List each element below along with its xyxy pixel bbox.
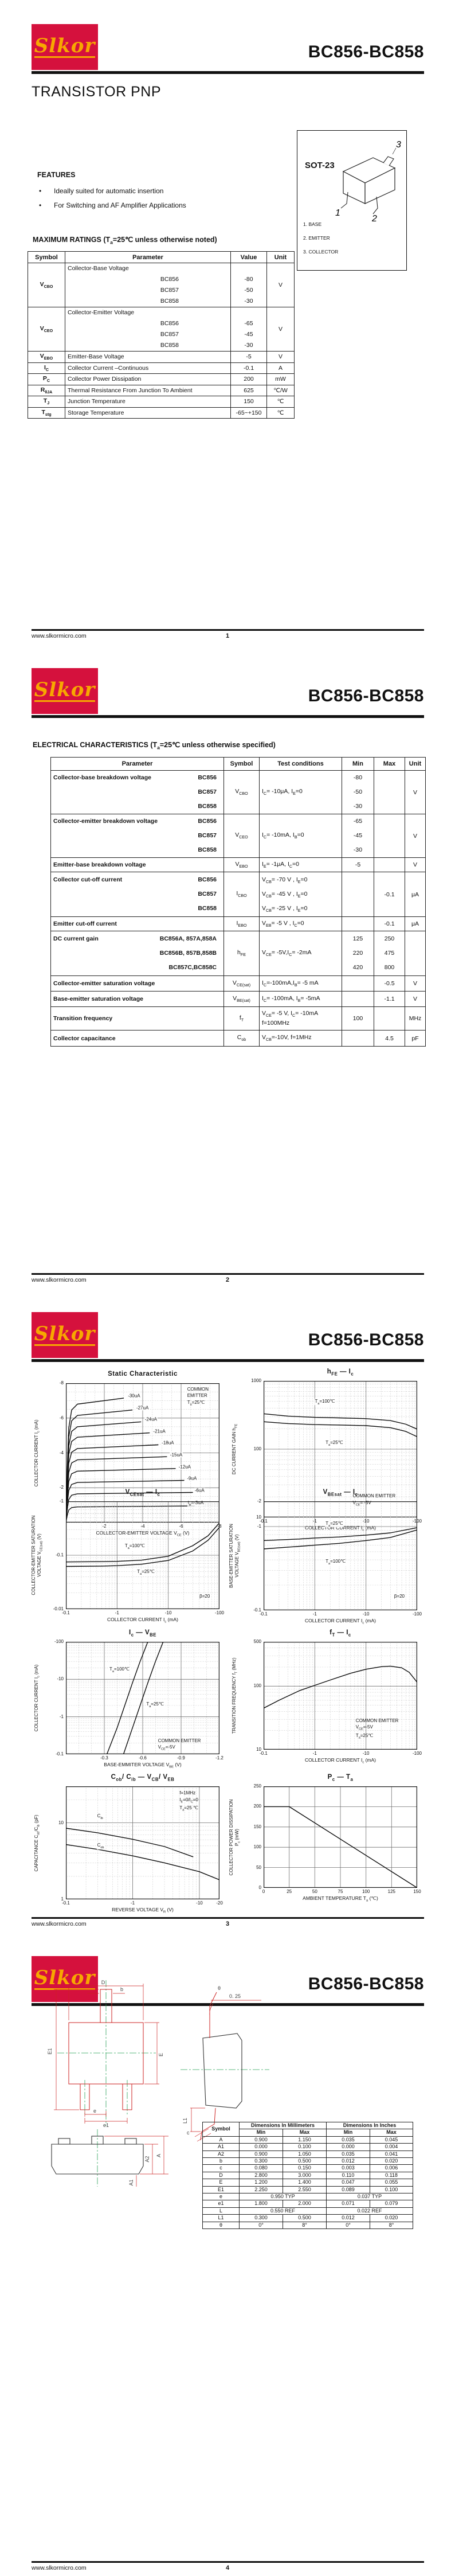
cell-symbol: VEBO <box>28 352 65 363</box>
cell-unit: V <box>267 352 295 363</box>
cell-symbol: E <box>203 2179 240 2186</box>
chart-plot-3 <box>66 1501 219 1609</box>
cell-value: 0.118 <box>370 2172 413 2179</box>
cell-value: 0.003 <box>327 2165 370 2172</box>
table-header-row: ParameterSymbolTest conditionsMinMaxUnit <box>51 758 426 771</box>
cell-value: -65~+150 <box>231 407 267 419</box>
cell-unit: V <box>267 307 295 352</box>
y-tick-label: -10 <box>44 1676 64 1681</box>
cell-unit: ℃ <box>267 407 295 419</box>
x-tick-label: -0.9 <box>171 1755 191 1761</box>
cell-unit: mW <box>267 374 295 385</box>
cell-test-conditions: IC=-100mA,IB= -5 mA <box>260 976 342 992</box>
part-number-title: BC856-BC858 <box>308 42 424 62</box>
column-header: Value <box>231 252 267 263</box>
table-row: E12.2502.5500.0890.100 <box>203 2186 413 2193</box>
cell-symbol: L1 <box>203 2215 240 2222</box>
cell-value: 0.950 TYP <box>240 2193 327 2200</box>
footer-rule <box>32 1273 424 1275</box>
column-header: Symbol <box>28 252 65 263</box>
cell-value: 0.500 <box>283 2215 327 2222</box>
feature-item: •For Switching and AF Amplifier Applicat… <box>39 201 186 209</box>
curve-label: Ta=25℃ <box>325 1441 343 1447</box>
cell-unit <box>405 931 426 976</box>
table-header-row: SymbolParameterValueUnit <box>28 252 295 263</box>
brand-logo: Slkor <box>32 24 98 70</box>
table-row: TJ Junction Temperature 150 ℃ <box>28 396 295 408</box>
cell-value: 0.037 TYP <box>327 2193 413 2200</box>
cell-value: 8° <box>283 2222 327 2228</box>
cell-min <box>342 917 374 931</box>
table-row: VEBO Emitter-Base Voltage -5 V <box>28 352 295 363</box>
x-tick-label: -1 <box>123 1900 142 1906</box>
part-number-title: BC856-BC858 <box>308 1974 424 1994</box>
cell-max <box>374 814 405 858</box>
cell-value: -0.1 <box>231 362 267 374</box>
y-axis-title: DC CURRENT GAIN hFE <box>232 1381 238 1517</box>
package-name: SOT-23 <box>305 161 335 170</box>
curve-label: Ta=100℃ <box>314 1399 335 1406</box>
y-tick-label: -2 <box>242 1498 261 1504</box>
pin-legend-base: 1. BASE <box>303 221 321 227</box>
curve-label: Ta=25℃ <box>325 1521 343 1528</box>
cell-value: 1.050 <box>283 2150 327 2157</box>
cell-symbol: RθJA <box>28 385 65 396</box>
cell-symbol: VEBO <box>224 858 260 872</box>
cell-symbol: fT <box>224 1007 260 1031</box>
dim-label-E: E <box>158 2053 164 2056</box>
page-number: 1 <box>0 633 455 639</box>
page-4: Slkor BC856-BC858 D b E1 E e <box>0 1932 455 2576</box>
cell-symbol: b <box>203 2158 240 2165</box>
column-header: Test conditions <box>260 758 342 771</box>
y-axis-title: COLLECTOR-EMITTER SATURATIONVOLTAGE VCE(… <box>31 1501 44 1609</box>
table-row: Emitter-base breakdown voltage VEBO IE= … <box>51 858 426 872</box>
cell-max: 4.5 <box>374 1031 405 1047</box>
x-tick-label: 75 <box>331 1889 350 1894</box>
cell-value: 0.035 <box>327 2150 370 2157</box>
header-rule <box>32 715 424 718</box>
cell-parameter: Collector-emitter saturation voltage <box>51 976 224 992</box>
cell-value: 0.300 <box>240 2215 283 2222</box>
cell-max: -1.1 <box>374 992 405 1007</box>
table-row: Collector-base breakdown voltageBC856BC8… <box>51 771 426 814</box>
cell-symbol: θ <box>203 2222 240 2228</box>
page-number: 4 <box>0 2565 455 2571</box>
cell-value: 0.006 <box>370 2165 413 2172</box>
footer-rule <box>32 2561 424 2563</box>
cell-value: 3.000 <box>283 2172 327 2179</box>
chart-title: VBEsat — Ic <box>264 1489 417 1497</box>
column-header: Parameter <box>65 252 231 263</box>
feature-item: •Ideally suited for automatic insertion <box>39 187 163 195</box>
cell-max: -0.1 <box>374 917 405 931</box>
cell-unit: V <box>405 814 426 858</box>
pin-legend-collector: 3. COLLECTOR <box>303 249 338 255</box>
y-tick-label: 1 <box>44 1896 64 1902</box>
dim-label-D: D <box>101 1980 105 1985</box>
column-header: Unit <box>267 252 295 263</box>
cell-max: -0.1 <box>374 872 405 917</box>
y-tick-label: 10 <box>242 1747 261 1752</box>
curve-label: Ta=100℃ <box>325 1559 346 1566</box>
cell-value: 0.080 <box>240 2165 283 2172</box>
pin-number-label: 3 <box>396 140 401 150</box>
cell-parameter: Collector-emitter breakdown voltageBC856… <box>51 814 224 858</box>
characteristic-charts: Static Characteristic-2-4-6-8-2-4-6-8COL… <box>0 1288 455 1932</box>
x-tick-label: 50 <box>305 1889 324 1894</box>
chart-annotation: β=20 <box>394 1593 405 1600</box>
cell-test-conditions: VEB= -5 V , IC=0 <box>260 917 342 931</box>
cell-symbol: TJ <box>28 396 65 408</box>
table-row: A20.9001.0500.0350.041 <box>203 2150 413 2157</box>
dim-label-theta: θ <box>218 1985 221 1991</box>
table-row: Base-emitter saturation voltage VBE(sat)… <box>51 992 426 1007</box>
cell-max <box>374 771 405 814</box>
cell-symbol: A <box>203 2136 240 2143</box>
dim-label-025: 0. 25 <box>229 1993 241 1999</box>
page-3: Slkor BC856-BC858 Static Characteristic-… <box>0 1288 455 1932</box>
cell-parameter: Storage Temperature <box>65 407 231 419</box>
table-header-row: SymbolDimensions In MillimetersDimension… <box>203 2122 413 2129</box>
cell-parameter: Collector-Base VoltageBC856BC857BC858 <box>65 263 231 307</box>
column-header: Min <box>327 2129 370 2136</box>
y-tick-label: 10 <box>44 1820 64 1825</box>
y-axis-title: COLLECTOR CURRENT Ic (mA) <box>34 1642 41 1754</box>
y-tick-label: 0 <box>242 1885 261 1890</box>
cell-symbol: Tstg <box>28 407 65 419</box>
curve-label: Ta=25℃ <box>136 1569 155 1576</box>
x-tick-label: 125 <box>382 1889 401 1894</box>
table-row: IC Collector Current –Continuous -0.1 A <box>28 362 295 374</box>
cell-parameter: Collector Power Dissipation <box>65 374 231 385</box>
cell-symbol: PC <box>28 374 65 385</box>
curve-label: Cob <box>97 1843 105 1850</box>
cell-value: 1.400 <box>283 2179 327 2186</box>
cell-symbol: hFE <box>224 931 260 976</box>
cell-value: 0.000 <box>327 2144 370 2150</box>
chart-annotation: COMMON EMITTERVCE=-5VTa=25℃ <box>356 1718 399 1741</box>
curve-label: Cib <box>97 1813 104 1820</box>
table-row: VCEO Collector-Emitter VoltageBC856BC857… <box>28 307 295 352</box>
cell-test-conditions: VCB=-10V, f=1MHz <box>260 1031 342 1047</box>
y-tick-label: 50 <box>242 1865 261 1870</box>
cell-value: 0.004 <box>370 2144 413 2150</box>
cell-symbol: L <box>203 2207 240 2214</box>
cell-value: 0° <box>327 2222 370 2228</box>
column-header: Symbol <box>203 2122 240 2137</box>
package-top-view-drawing: D b E1 E e e1 <box>34 1978 172 2128</box>
y-tick-label: 150 <box>242 1824 261 1829</box>
column-header: Dimensions In Millimeters <box>240 2122 327 2129</box>
cell-min <box>342 872 374 917</box>
cell-value: 2.550 <box>283 2186 327 2193</box>
table-row: Collector capacitance Cob VCB=-10V, f=1M… <box>51 1031 426 1047</box>
chart-title: Ic — VBE <box>66 1629 219 1637</box>
column-header: Max <box>374 758 405 771</box>
x-tick-label: -0.6 <box>133 1755 152 1761</box>
column-header: Unit <box>405 758 426 771</box>
cell-value: 1.150 <box>283 2136 327 2143</box>
chart-plot-8 <box>264 1786 417 1888</box>
chart-title: hFE — Ic <box>264 1368 417 1376</box>
cell-parameter: Collector Current –Continuous <box>65 362 231 374</box>
cell-value: 0° <box>240 2222 283 2228</box>
x-tick-label: -100 <box>210 1610 229 1615</box>
cell-value: 0.300 <box>240 2158 283 2165</box>
y-tick-label: -0.1 <box>242 1607 261 1613</box>
y-tick-label: -0.01 <box>44 1606 64 1611</box>
y-tick-label: -0.1 <box>44 1552 64 1558</box>
x-tick-label: -1 <box>305 1611 324 1617</box>
cell-value: 8° <box>370 2222 413 2228</box>
cell-symbol: c <box>203 2165 240 2172</box>
y-tick-label: -1 <box>44 1714 64 1719</box>
cell-test-conditions: IE= -1μA, IC=0 <box>260 858 342 872</box>
cell-max: -0.5 <box>374 976 405 992</box>
page-number: 3 <box>0 1921 455 1927</box>
chart-annotation: β=20 <box>199 1593 210 1600</box>
cell-value: 0.041 <box>370 2150 413 2157</box>
y-axis-title: COLLECTOR POWER DISSIPATIONPc (mW) <box>229 1786 241 1888</box>
cell-value: 0.089 <box>327 2186 370 2193</box>
y-tick-label: -0.1 <box>44 1751 64 1757</box>
cell-unit: V <box>405 858 426 872</box>
cell-parameter: Collector capacitance <box>51 1031 224 1047</box>
curve-label: -30uA <box>127 1393 140 1398</box>
cell-parameter: Thermal Resistance From Junction To Ambi… <box>65 385 231 396</box>
chart-annotation: f=1MHzIE=0/IC=0Ta=25 ℃ <box>179 1790 198 1813</box>
cell-value: 0.500 <box>283 2158 327 2165</box>
cell-unit: MHz <box>405 1007 426 1031</box>
column-header: Max <box>370 2129 413 2136</box>
x-tick-label: 25 <box>280 1889 299 1894</box>
cell-value: 0.045 <box>370 2136 413 2143</box>
cell-unit: μA <box>405 917 426 931</box>
cell-value: 0.100 <box>370 2186 413 2193</box>
curve-label: -27uA <box>136 1405 149 1410</box>
part-number-title: BC856-BC858 <box>308 686 424 706</box>
y-tick-label: 250 <box>242 1783 261 1789</box>
cell-value: 2.000 <box>283 2200 327 2207</box>
cell-parameter: Collector cut-off currentBC856BC857BC858 <box>51 872 224 917</box>
cell-min: 125220420 <box>342 931 374 976</box>
chart-title: Cob/ Cib — VCB/ VEB <box>66 1774 219 1782</box>
cell-unit: V <box>405 976 426 992</box>
cell-value: 0.100 <box>283 2144 327 2150</box>
header-rule <box>32 71 424 74</box>
y-tick-label: -1 <box>44 1498 64 1504</box>
cell-min <box>342 976 374 992</box>
cell-symbol: IC <box>28 362 65 374</box>
cell-parameter: Junction Temperature <box>65 396 231 408</box>
table-row: Tstg Storage Temperature -65~+150 ℃ <box>28 407 295 419</box>
dim-label-A1: A1 <box>128 2179 134 2185</box>
cell-test-conditions: VCE= -5 V, IC= -10mAf=100MHz <box>260 1007 342 1031</box>
x-axis-title: COLLECTOR CURRENT Ic (mA) <box>264 1618 417 1625</box>
x-tick-label: -10 <box>356 1611 376 1617</box>
cell-value: 0.055 <box>370 2179 413 2186</box>
x-tick-label: -10 <box>159 1610 178 1615</box>
table-row: L0.550 REF0.022 REF <box>203 2207 413 2214</box>
cell-unit: ℃/W <box>267 385 295 396</box>
cell-value: 0.012 <box>327 2215 370 2222</box>
chart-annotation: COMMONEMITTERTa=25℃ <box>187 1386 209 1408</box>
table-row: b0.3000.5000.0120.020 <box>203 2158 413 2165</box>
cell-unit: V <box>267 263 295 307</box>
cell-min: -80-50-30 <box>342 771 374 814</box>
chart-title: VCEsat — Ic <box>66 1489 219 1497</box>
y-axis-title: BASE-EMITTER SATURATIONVOLTAGE VBE(sat) … <box>229 1501 241 1610</box>
table-row: A10.0000.1000.0000.004 <box>203 2144 413 2150</box>
cell-parameter: Emitter cut-off current <box>51 917 224 931</box>
x-axis-title: AMBIENT TEMPERATURE Ta (℃) <box>264 1895 417 1903</box>
cell-value: 0.012 <box>327 2158 370 2165</box>
cell-parameter: Collector-base breakdown voltageBC856BC8… <box>51 771 224 814</box>
y-axis-title: TRANSITION FREQUENCY fT (MHz) <box>232 1642 238 1750</box>
brand-logo-text: Slkor <box>34 680 96 702</box>
cell-symbol: VCEO <box>224 814 260 858</box>
curve-label: -12uA <box>178 1464 191 1469</box>
y-tick-label: 100 <box>242 1683 261 1688</box>
x-tick-label: -1.2 <box>210 1755 229 1761</box>
pin-number-label: 2 <box>371 214 377 223</box>
brand-logo-text: Slkor <box>34 36 96 58</box>
cell-symbol: VCBO <box>224 771 260 814</box>
cell-value: 0.900 <box>240 2150 283 2157</box>
y-tick-label: 1000 <box>242 1378 261 1383</box>
cell-test-conditions: VCB= -70 V , IE=0VCB= -45 V , IE=0VCB= -… <box>260 872 342 917</box>
column-header: Dimensions In Inches <box>327 2122 413 2129</box>
table-row: L10.3000.5000.0120.020 <box>203 2215 413 2222</box>
cell-unit: μA <box>405 872 426 917</box>
cell-symbol: VCE(sat) <box>224 976 260 992</box>
x-tick-label: -10 <box>356 1751 376 1756</box>
curve-label: -15uA <box>170 1453 183 1458</box>
features-title: FEATURES <box>37 171 75 179</box>
device-type-title: TRANSISTOR PNP <box>32 84 161 100</box>
chart-title: Pc — Ta <box>264 1774 417 1782</box>
cell-value: 0.110 <box>327 2172 370 2179</box>
cell-value: 0.047 <box>327 2179 370 2186</box>
cell-symbol: Cob <box>224 1031 260 1047</box>
table-row: A0.9001.1500.0350.045 <box>203 2136 413 2143</box>
cell-min: 100 <box>342 1007 374 1031</box>
y-tick-label: -4 <box>44 1450 64 1455</box>
cell-symbol: VBE(sat) <box>224 992 260 1007</box>
dim-label-c: c <box>187 2130 190 2136</box>
x-tick-label: -20 <box>210 1900 229 1906</box>
cell-value: 0.079 <box>370 2200 413 2207</box>
curve-label: -9uA <box>186 1476 197 1481</box>
chart-annotation: COMMON EMITTERVCE=-5V <box>158 1738 201 1753</box>
electrical-characteristics-title: ELECTRICAL CHARACTERISTICS (Ta=25℃ unles… <box>33 740 276 751</box>
x-tick-label: -10 <box>190 1900 209 1906</box>
dim-label-e: e <box>93 2108 96 2114</box>
column-header: Symbol <box>224 758 260 771</box>
cell-parameter: Transition frequency <box>51 1007 224 1031</box>
brand-logo: Slkor <box>32 668 98 714</box>
dim-label-A: A <box>156 2154 162 2157</box>
cell-test-conditions: IC= -10mA, IB=0 <box>260 814 342 858</box>
y-tick-label: 10 <box>242 1515 261 1520</box>
cell-max <box>374 1007 405 1031</box>
chart-title: fT — Ic <box>264 1629 417 1637</box>
table-row: D2.8003.0000.1100.118 <box>203 2172 413 2179</box>
column-header: Min <box>342 758 374 771</box>
package-outline-box: SOT-23 3 1 2 1. BASE 2. EMITTER 3. COLLE… <box>297 130 407 271</box>
pin-number-label: 1 <box>335 208 340 218</box>
cell-unit: pF <box>405 1031 426 1047</box>
table-row: E1.2001.4000.0470.055 <box>203 2179 413 2186</box>
cell-symbol: E1 <box>203 2186 240 2193</box>
curve-label: -21uA <box>152 1428 166 1434</box>
x-tick-label: -1 <box>305 1751 324 1756</box>
cell-symbol: IEBO <box>224 917 260 931</box>
y-tick-label: 100 <box>242 1844 261 1849</box>
x-tick-label: -100 <box>407 1611 427 1617</box>
electrical-characteristics-table: ParameterSymbolTest conditionsMinMaxUnit… <box>50 757 426 1047</box>
y-tick-label: -2 <box>44 1485 64 1490</box>
curve-label: -24uA <box>144 1417 158 1422</box>
x-tick-label: -100 <box>407 1751 427 1756</box>
cell-parameter: Collector-Emitter VoltageBC856BC857BC858 <box>65 307 231 352</box>
cell-value: 0.035 <box>327 2136 370 2143</box>
cell-symbol: e1 <box>203 2200 240 2207</box>
package-front-view-drawing: A2 A A1 <box>40 2127 175 2190</box>
table-row: c0.0800.1500.0030.006 <box>203 2165 413 2172</box>
footer-rule <box>32 629 424 631</box>
cell-min: -5 <box>342 858 374 872</box>
chart-title: Static Characteristic <box>66 1371 219 1377</box>
table-row: θ0°8°0°8° <box>203 2222 413 2228</box>
cell-value: 150 <box>231 396 267 408</box>
cell-value: 0.020 <box>370 2215 413 2222</box>
y-tick-label: -1 <box>242 1524 261 1529</box>
cell-value: 2.250 <box>240 2186 283 2193</box>
cell-value: 0.150 <box>283 2165 327 2172</box>
cell-symbol: VCBO <box>28 263 65 307</box>
table-row: Collector-emitter breakdown voltageBC856… <box>51 814 426 858</box>
cell-parameter: Emitter-Base Voltage <box>65 352 231 363</box>
dim-label-L1: L1 <box>182 2118 188 2124</box>
cell-value: 0.900 <box>240 2136 283 2143</box>
cell-unit: A <box>267 362 295 374</box>
curve-label: -18uA <box>161 1441 174 1446</box>
cell-symbol: ICBO <box>224 872 260 917</box>
x-axis-title: BASE-EMMITER VOLTAGE VBE (V) <box>66 1762 219 1769</box>
dimensions-table: SymbolDimensions In MillimetersDimension… <box>202 2122 413 2229</box>
x-axis-title: REVERSE VOLTAGE VR (V) <box>66 1907 219 1914</box>
page-number: 2 <box>0 1277 455 1283</box>
table-row: RθJA Thermal Resistance From Junction To… <box>28 385 295 396</box>
cell-symbol: VCEO <box>28 307 65 352</box>
curve-label: Ta=25℃ <box>146 1701 164 1708</box>
cell-test-conditions: IC= -10μA, IE=0 <box>260 771 342 814</box>
curve-label: Ta=100℃ <box>109 1666 130 1673</box>
y-tick-label: 500 <box>242 1639 261 1644</box>
cell-min <box>342 1031 374 1047</box>
table-row: Collector-emitter saturation voltage VCE… <box>51 976 426 992</box>
cell-value: -80-50-30 <box>231 263 267 307</box>
y-tick-label: 200 <box>242 1804 261 1809</box>
table-row: e0.950 TYP0.037 TYP <box>203 2193 413 2200</box>
x-axis-title: COLLECTOR CURRENT Ic (mA) <box>264 1757 417 1765</box>
cell-value: -5 <box>231 352 267 363</box>
table-row: e11.8002.0000.0710.079 <box>203 2200 413 2207</box>
max-ratings-table: SymbolParameterValueUnit VCBO Collector-… <box>28 251 295 419</box>
cell-test-conditions: IC= -100mA, IB= -5mA <box>260 992 342 1007</box>
